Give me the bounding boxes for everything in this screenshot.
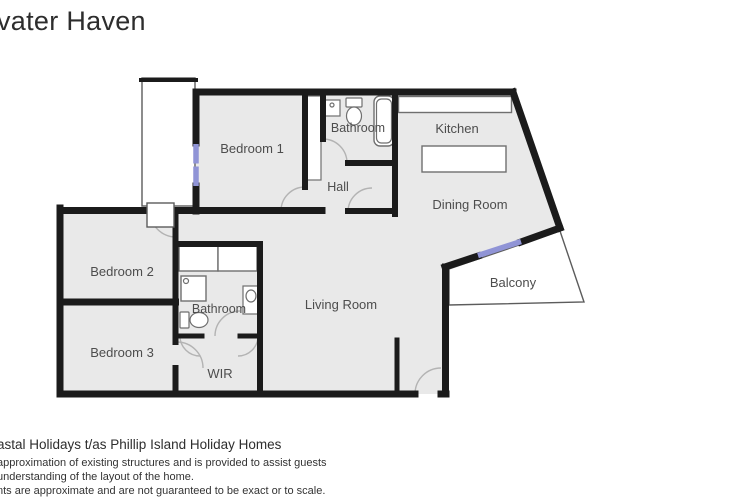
label-living: Living Room	[305, 297, 377, 312]
kitchen-counter	[399, 97, 512, 113]
built-in-robe	[307, 96, 321, 180]
footer: astal Holidays t/as Phillip Island Holid…	[0, 437, 327, 498]
robe-right	[218, 246, 257, 271]
label-hall: Hall	[327, 180, 349, 194]
robe-left	[179, 246, 218, 271]
kitchen-island	[422, 146, 506, 172]
label-bathroom1: Bathroom	[331, 121, 385, 135]
label-bedroom3: Bedroom 3	[90, 345, 154, 360]
footer-company-line: astal Holidays t/as Phillip Island Holid…	[0, 437, 327, 452]
label-balcony: Balcony	[490, 275, 537, 290]
vanity-basin	[246, 290, 256, 302]
footer-disclaimer-1: approximation of existing structures and…	[0, 456, 327, 470]
shower	[181, 276, 206, 301]
entry-step	[147, 203, 174, 227]
floor-plan: Bedroom 1 Bathroom Kitchen Hall Dining R…	[0, 0, 750, 500]
page: vater Haven	[0, 0, 750, 500]
toilet-tank	[346, 98, 362, 107]
toilet2-tank	[180, 312, 189, 328]
label-bedroom1: Bedroom 1	[220, 141, 284, 156]
label-wir: WIR	[207, 366, 232, 381]
label-bedroom2: Bedroom 2	[90, 264, 154, 279]
label-kitchen: Kitchen	[435, 121, 478, 136]
footer-disclaimer-2: understanding of the layout of the home.	[0, 470, 327, 484]
label-bathroom2: Bathroom	[192, 302, 246, 316]
label-dining: Dining Room	[432, 197, 507, 212]
porch	[142, 78, 195, 206]
footer-disclaimer-3: nts are approximate and are not guarante…	[0, 484, 327, 498]
